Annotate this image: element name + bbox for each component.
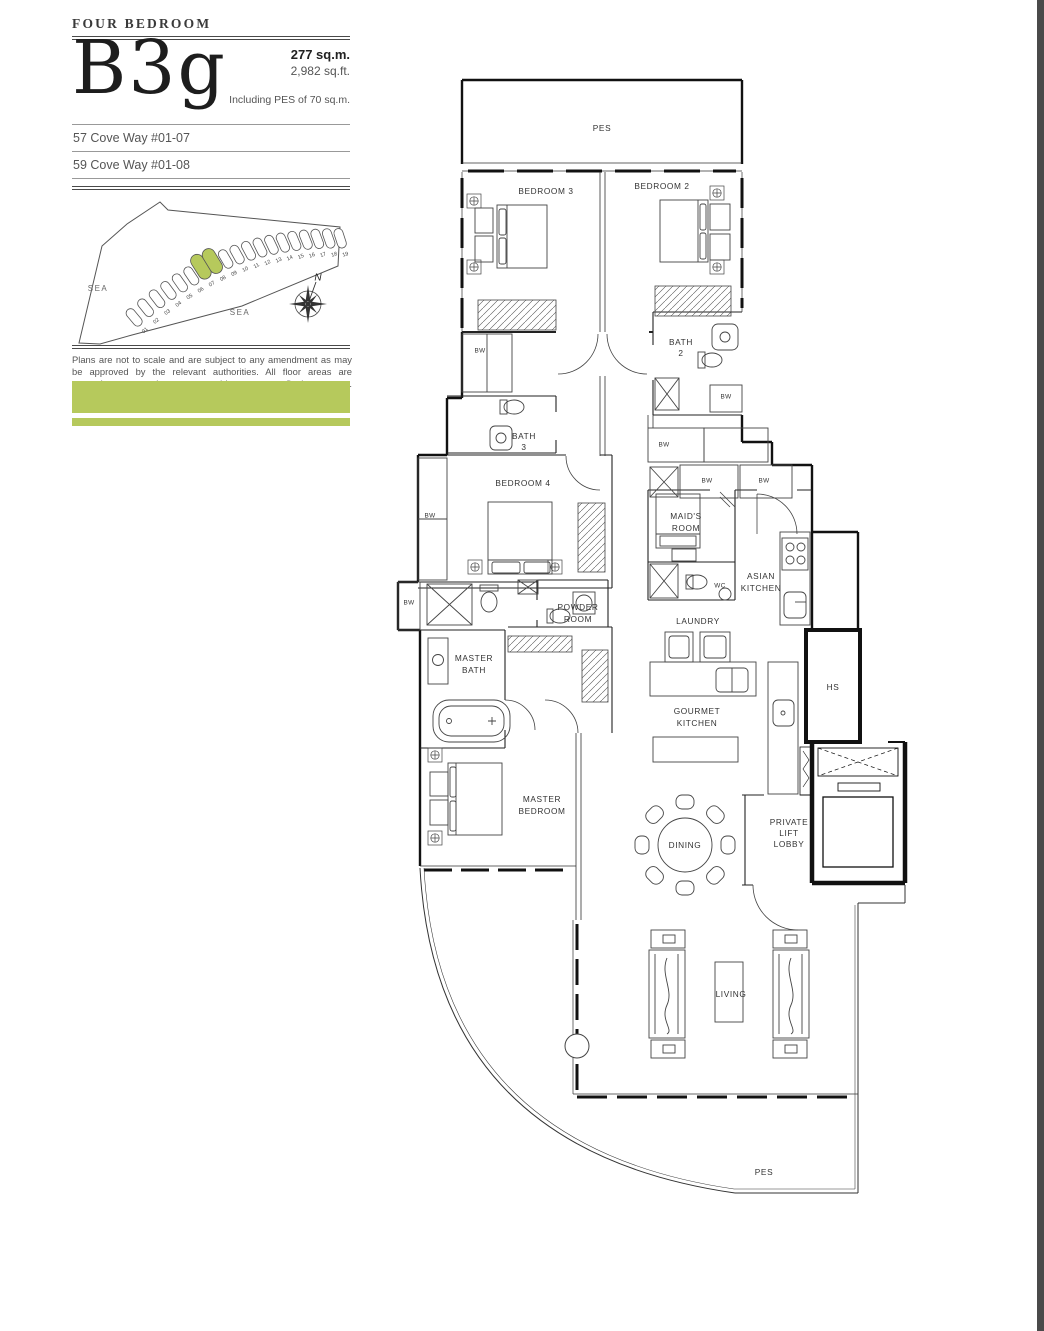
unit-code: B3g (72, 30, 227, 108)
area-block: 277 sq.m. 2,982 sq.ft. Including PES of … (229, 47, 350, 106)
room-label-bath3: BATH (512, 431, 536, 441)
room-label-private-lift-lobby: LOBBY (774, 839, 805, 849)
site-key-plan: 01020304050607080910111213141516171819 S… (72, 194, 362, 346)
interior-walls (418, 312, 860, 885)
floor-plan: PES BEDROOM 3 BEDROOM 2 BATH 2 BATH 3 BE… (390, 60, 955, 1275)
room-label-dining: DINING (669, 840, 702, 850)
room-label-gourmet-kitchen: KITCHEN (677, 718, 718, 728)
room-label-gourmet-kitchen: GOURMET (674, 706, 721, 716)
svg-text:16: 16 (308, 252, 316, 260)
svg-text:07: 07 (208, 280, 216, 288)
compass-icon: N (289, 273, 327, 323)
address-row: 57 Cove Way #01-07 (72, 125, 350, 152)
room-label-wc: WC (714, 583, 725, 590)
room-label-bedroom4: BEDROOM 4 (495, 478, 550, 488)
lift-shaft (800, 742, 905, 883)
svg-text:19: 19 (342, 251, 350, 259)
svg-text:09: 09 (230, 270, 238, 278)
column (565, 1034, 589, 1058)
room-label-powder-room: POWDER (558, 602, 599, 612)
room-label-private-lift-lobby: PRIVATE (770, 817, 808, 827)
sea-label: SEA (230, 308, 251, 317)
door-arcs (505, 334, 798, 930)
bw-label: BW (474, 348, 486, 355)
bathroom-fixtures (428, 585, 510, 742)
svg-text:04: 04 (175, 300, 183, 308)
green-accent-bar (72, 418, 350, 426)
room-label-asian-kitchen: KITCHEN (741, 583, 782, 593)
svg-text:13: 13 (275, 257, 283, 265)
bw-label: BW (403, 600, 415, 607)
room-label-powder-room: ROOM (564, 614, 592, 624)
bw-label: BW (658, 442, 670, 449)
room-label-pes-top: PES (593, 123, 611, 133)
double-rule (72, 345, 350, 349)
svg-text:05: 05 (186, 293, 194, 301)
kitchen-fixtures (650, 662, 798, 794)
sofa-icon (649, 930, 685, 1058)
brochure-page: FOUR BEDROOM B3g 277 sq.m. 2,982 sq.ft. … (0, 0, 1044, 1331)
kitchen-fixtures (780, 532, 810, 625)
room-label-master-bath: MASTER (455, 653, 493, 663)
bed-icon (488, 502, 552, 574)
green-accent-block (72, 381, 350, 413)
double-rule (72, 186, 350, 190)
room-label-maids-room: ROOM (672, 523, 700, 533)
room-label-bath2: 2 (678, 348, 683, 358)
area-sqft: 2,982 sq.ft. (229, 64, 350, 78)
north-label: N (314, 273, 322, 284)
room-label-laundry: LAUNDRY (676, 616, 720, 626)
room-label-maids-room: MAID'S (670, 511, 701, 521)
pes-note: Including PES of 70 sq.m. (229, 94, 350, 106)
address-list: 57 Cove Way #01-07 59 Cove Way #01-08 (72, 124, 350, 179)
bed-icon (430, 763, 502, 835)
terrace-parapet (420, 868, 905, 1193)
room-label-asian-kitchen: ASIAN (747, 571, 775, 581)
svg-text:10: 10 (241, 266, 249, 274)
svg-text:15: 15 (297, 253, 305, 261)
room-label-master-bath: BATH (462, 665, 486, 675)
room-label-private-lift-lobby: LIFT (779, 828, 798, 838)
svg-text:02: 02 (152, 317, 160, 325)
bw-label: BW (424, 513, 436, 520)
svg-text:14: 14 (286, 255, 294, 263)
address-row: 59 Cove Way #01-08 (72, 152, 350, 179)
room-labels: PES BEDROOM 3 BEDROOM 2 BATH 2 BATH 3 BE… (403, 123, 839, 1177)
room-label-bedroom2: BEDROOM 2 (634, 181, 689, 191)
bw-label: BW (701, 478, 713, 485)
sea-label: SEA (88, 284, 109, 293)
bed-icon (475, 205, 547, 268)
svg-text:12: 12 (264, 259, 272, 267)
svg-text:11: 11 (253, 262, 261, 270)
room-label-master-bedroom: BEDROOM (518, 806, 565, 816)
svg-text:08: 08 (219, 275, 227, 283)
room-label-bath3: 3 (521, 442, 526, 452)
bw-label: BW (758, 478, 770, 485)
svg-text:06: 06 (197, 286, 205, 294)
area-sqm: 277 sq.m. (229, 47, 350, 62)
svg-text:18: 18 (331, 251, 339, 259)
closets (398, 334, 792, 630)
room-label-bath2: BATH (669, 337, 693, 347)
sofa-icon (773, 930, 809, 1058)
room-label-living: LIVING (716, 989, 747, 999)
svg-text:03: 03 (163, 308, 171, 316)
page-edge-strip (1037, 0, 1044, 1331)
bw-label: BW (720, 394, 732, 401)
room-label-pes-bottom: PES (755, 1167, 773, 1177)
svg-text:17: 17 (319, 251, 327, 259)
bed-icon (660, 200, 730, 262)
bathroom-fixtures (490, 400, 524, 450)
room-label-bedroom3: BEDROOM 3 (518, 186, 573, 196)
svg-text:01: 01 (141, 327, 149, 335)
room-label-hs: HS (827, 682, 840, 692)
room-label-master-bedroom: MASTER (523, 794, 561, 804)
laundry-machines (665, 632, 730, 662)
